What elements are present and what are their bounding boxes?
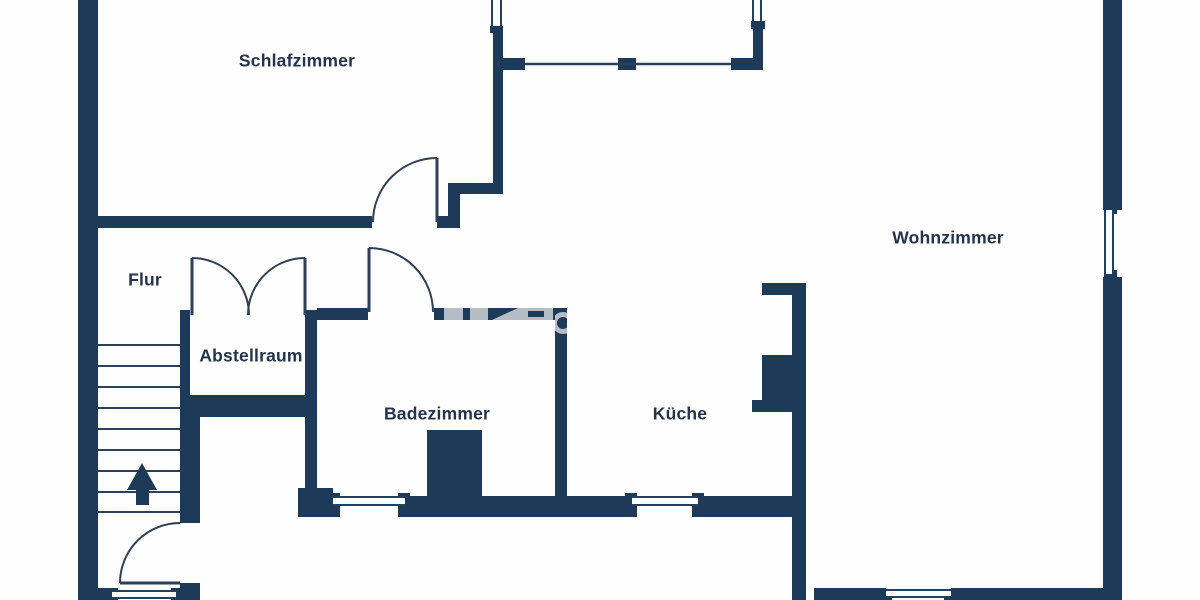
door-entry [120, 523, 180, 583]
railing-stub-right [731, 58, 753, 70]
watermark-ring [555, 312, 567, 334]
watermark-fragment [444, 308, 463, 320]
wall-badezimmer-right [555, 308, 567, 517]
wall-kitchen-chimney [762, 355, 795, 412]
wall-wohnzimmer-bottom-right [951, 588, 1122, 600]
window-kueche [632, 496, 698, 506]
wall-exterior-right-top [1103, 0, 1122, 210]
door-schlafzimmer [373, 158, 437, 222]
wall-corridor-left [180, 417, 200, 523]
railing-stub-left [503, 58, 525, 70]
watermark-fragment [470, 308, 488, 320]
window-sill-top-left [490, 26, 503, 33]
wall-kitchen-right [792, 283, 806, 600]
door-badezimmer [369, 248, 433, 312]
floor-plan: Schlafzimmer Flur Abstellraum Badezimmer… [0, 0, 1200, 600]
wall-step-horizontal [448, 183, 503, 194]
wall-exterior-left [78, 0, 98, 600]
wall-badezimmer-top-left [317, 308, 368, 320]
wall-schlafzimmer-bottom [78, 216, 372, 228]
door-abstellraum-double [192, 258, 305, 315]
wall-schlafzimmer-right [493, 30, 503, 190]
wall-door-hinge-block [437, 216, 460, 228]
wall-abstellraum-bottom [180, 395, 317, 417]
stairs-up-arrow-icon [127, 463, 157, 505]
wall-kitchen-top-stub [762, 283, 806, 295]
window-sill-top-right [751, 21, 765, 29]
room-label-abstellraum: Abstellraum [199, 346, 302, 367]
window-entry-south [112, 590, 176, 599]
watermark-notch [528, 311, 544, 317]
room-label-wohnzimmer: Wohnzimmer [892, 228, 1004, 249]
railing-post-center [618, 58, 636, 70]
wall-kitchen-bottom-right [692, 496, 792, 517]
wall-bath-kitchen-bottom [398, 496, 637, 517]
window-wohnzimmer-east [1104, 210, 1114, 274]
window-terrace-right [752, 0, 762, 21]
window-badezimmer [333, 496, 405, 506]
wall-badezimmer-block [427, 430, 482, 497]
wall-badezimmer-top-right [434, 308, 567, 320]
watermark-fragment [492, 308, 518, 320]
room-label-schlafzimmer: Schlafzimmer [239, 51, 355, 72]
window-terrace-left [491, 0, 502, 26]
stairs [98, 345, 182, 512]
room-label-flur: Flur [128, 270, 162, 291]
wall-exterior-right-bottom [1103, 277, 1122, 600]
window-wohnzimmer-south [886, 589, 951, 598]
wall-wohnzimmer-bottom-left [814, 588, 886, 600]
room-label-kueche: Küche [653, 404, 707, 425]
wall-terrace-right [753, 28, 763, 70]
room-label-badezimmer: Badezimmer [384, 404, 490, 425]
wall-badezimmer-left [305, 310, 317, 497]
wall-chimney-foot [752, 400, 762, 412]
